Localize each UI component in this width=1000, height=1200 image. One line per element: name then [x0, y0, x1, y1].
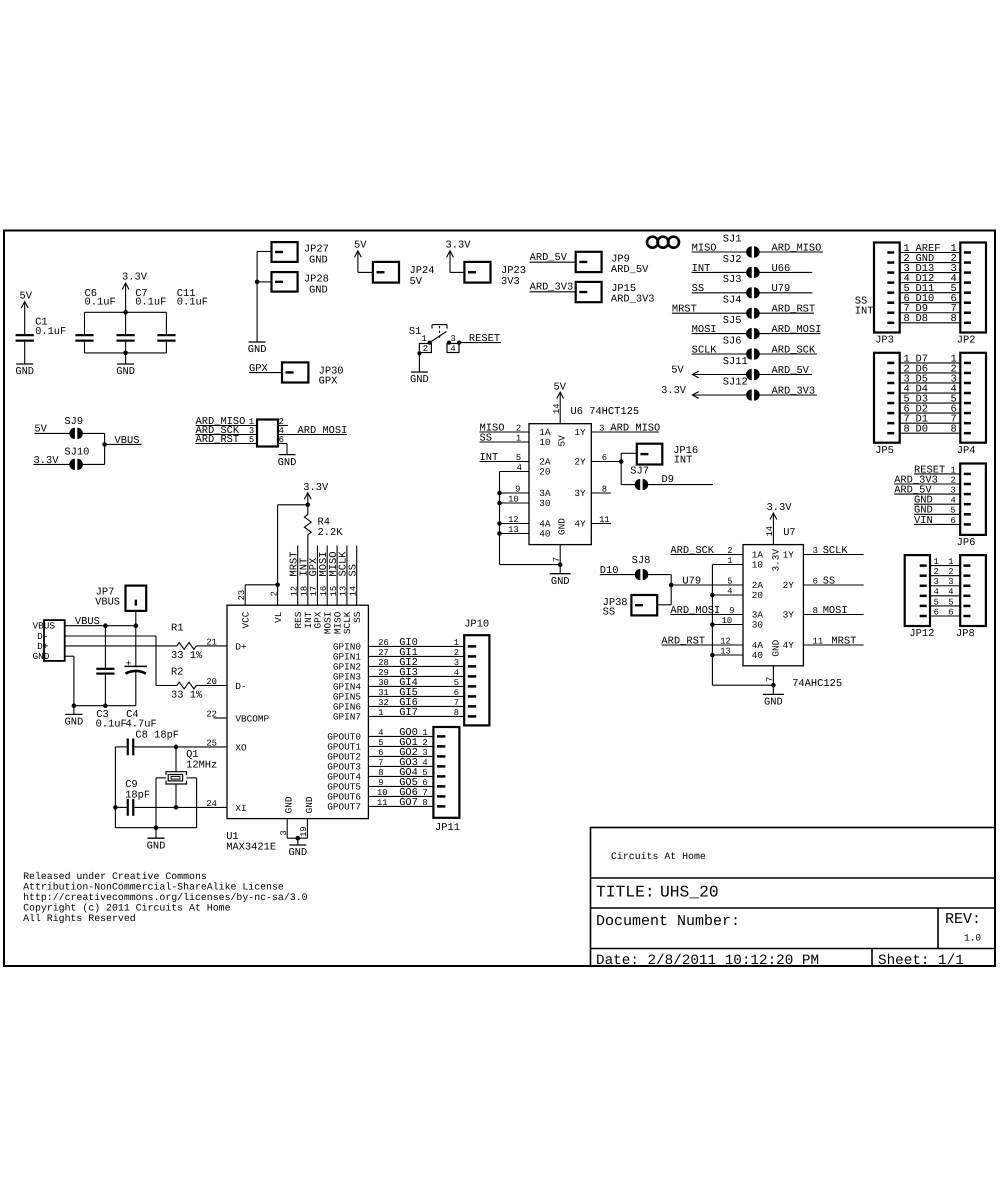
svg-text:20: 20 [752, 590, 764, 601]
svg-text:3: 3 [813, 546, 818, 556]
svg-text:INT: INT [674, 454, 693, 466]
svg-text:SJ4: SJ4 [723, 295, 742, 307]
svg-text:RESET: RESET [469, 333, 500, 345]
svg-text:13: 13 [339, 586, 349, 597]
svg-text:10: 10 [508, 494, 519, 504]
svg-text:10: 10 [377, 788, 388, 798]
svg-text:D8: D8 [916, 313, 928, 325]
svg-text:D+: D+ [235, 642, 247, 653]
svg-text:6: 6 [279, 435, 284, 445]
svg-text:4Y: 4Y [783, 640, 795, 651]
svg-text:3V3: 3V3 [501, 276, 520, 288]
svg-text:7: 7 [422, 788, 427, 798]
svg-text:SJ11: SJ11 [723, 356, 748, 368]
svg-text:GND: GND [147, 840, 166, 852]
svg-text:JP10: JP10 [464, 618, 489, 630]
svg-text:XO: XO [235, 743, 247, 754]
svg-text:Date: 2/8/2011 10:12:20 PM: Date: 2/8/2011 10:12:20 PM [596, 953, 819, 969]
svg-text:8: 8 [602, 484, 607, 494]
svg-text:INT: INT [299, 558, 311, 577]
svg-text:1: 1 [727, 556, 732, 566]
svg-text:1: 1 [516, 433, 521, 443]
svg-text:7: 7 [378, 758, 383, 768]
svg-text:12: 12 [508, 515, 519, 525]
svg-text:29: 29 [378, 668, 389, 678]
svg-text:SJ12: SJ12 [723, 376, 748, 388]
svg-text:5V: 5V [671, 365, 684, 377]
svg-text:0.1uF: 0.1uF [85, 296, 116, 308]
svg-text:5V: 5V [354, 240, 367, 252]
svg-text:UHS_20: UHS_20 [660, 882, 719, 901]
svg-text:6: 6 [602, 453, 607, 463]
svg-text:3.3V: 3.3V [770, 549, 781, 572]
svg-text:30: 30 [752, 620, 764, 631]
svg-text:14: 14 [349, 586, 359, 597]
svg-text:ARD_MOSI: ARD_MOSI [772, 324, 822, 336]
svg-text:9: 9 [729, 606, 734, 616]
svg-text:1.0: 1.0 [964, 932, 981, 943]
svg-text:SJ10: SJ10 [64, 447, 89, 459]
svg-text:17: 17 [309, 586, 319, 597]
svg-text:3: 3 [951, 486, 956, 496]
svg-text:D-: D- [235, 681, 246, 692]
svg-text:GND: GND [65, 717, 84, 729]
svg-text:SCLK: SCLK [692, 344, 718, 356]
svg-text:15: 15 [329, 586, 339, 597]
svg-text:GO7: GO7 [399, 797, 418, 809]
svg-text:18: 18 [300, 586, 310, 597]
svg-text:SS: SS [692, 283, 704, 295]
svg-text:JP4: JP4 [957, 445, 976, 457]
svg-text:10: 10 [752, 560, 764, 571]
svg-text:ARD_3V3: ARD_3V3 [772, 385, 816, 397]
svg-text:6: 6 [813, 576, 818, 586]
svg-text:40: 40 [752, 650, 764, 661]
svg-text:6: 6 [934, 607, 939, 617]
svg-text:VBCOMP: VBCOMP [235, 714, 269, 725]
svg-text:4: 4 [517, 463, 522, 473]
svg-text:GND: GND [304, 796, 315, 813]
svg-text:2: 2 [951, 475, 956, 485]
svg-text:INT: INT [692, 263, 711, 275]
svg-text:30: 30 [378, 678, 389, 688]
svg-text:1Y: 1Y [783, 550, 795, 561]
svg-text:14: 14 [552, 403, 562, 414]
svg-text:VBUS: VBUS [75, 616, 100, 628]
svg-text:5: 5 [378, 738, 383, 748]
svg-text:2Y: 2Y [574, 457, 586, 468]
svg-text:4: 4 [454, 668, 459, 678]
svg-text:5V: 5V [20, 291, 33, 303]
svg-text:Sheet: 1/1: Sheet: 1/1 [878, 953, 964, 969]
svg-text:GND: GND [116, 366, 135, 378]
svg-text:2: 2 [454, 648, 459, 658]
svg-text:19: 19 [299, 826, 309, 837]
svg-text:http://creativecommons.org/lic: http://creativecommons.org/licenses/by-n… [23, 892, 308, 903]
svg-text:3: 3 [599, 423, 604, 433]
svg-text:8: 8 [951, 424, 957, 436]
svg-text:GND: GND [284, 796, 295, 813]
svg-text:U79: U79 [682, 575, 701, 587]
svg-text:R1: R1 [171, 622, 183, 634]
svg-text:TITLE:: TITLE: [596, 882, 655, 901]
svg-text:28: 28 [378, 658, 389, 668]
svg-text:5V: 5V [410, 276, 423, 288]
svg-text:Circuits At Home: Circuits At Home [611, 851, 706, 862]
svg-text:4: 4 [934, 587, 939, 597]
svg-text:1: 1 [951, 465, 956, 475]
svg-text:2: 2 [934, 567, 939, 577]
svg-text:3: 3 [454, 658, 459, 668]
svg-text:MOSI: MOSI [692, 324, 717, 336]
svg-text:JP2: JP2 [957, 334, 976, 346]
svg-text:D0: D0 [916, 424, 928, 436]
svg-text:GND: GND [764, 697, 783, 709]
svg-text:10: 10 [722, 616, 733, 626]
svg-text:6: 6 [378, 748, 383, 758]
svg-text:ARD MOSI: ARD MOSI [298, 425, 348, 437]
svg-text:20: 20 [539, 467, 551, 478]
svg-text:INT: INT [303, 611, 314, 628]
svg-text:GND: GND [770, 639, 781, 656]
svg-text:5: 5 [934, 597, 939, 607]
svg-text:7: 7 [765, 677, 775, 682]
svg-text:U6 74HCT125: U6 74HCT125 [571, 406, 640, 418]
svg-text:5: 5 [727, 576, 732, 586]
svg-text:8: 8 [813, 606, 818, 616]
svg-text:6: 6 [951, 516, 956, 526]
svg-text:6: 6 [422, 778, 427, 788]
svg-text:VL: VL [273, 611, 284, 623]
svg-text:SJ3: SJ3 [723, 274, 742, 286]
svg-text:1: 1 [454, 638, 459, 648]
svg-text:S1: S1 [409, 326, 421, 338]
svg-text:4: 4 [951, 496, 956, 506]
svg-text:JP3: JP3 [875, 334, 894, 346]
svg-text:GPIN7: GPIN7 [333, 712, 361, 723]
svg-text:GND: GND [551, 576, 570, 588]
svg-text:7: 7 [454, 698, 459, 708]
svg-text:4Y: 4Y [574, 519, 586, 530]
svg-text:40: 40 [539, 529, 551, 540]
svg-text:12: 12 [290, 586, 300, 597]
svg-text:Document Number:: Document Number: [596, 913, 740, 930]
svg-text:VCC: VCC [240, 611, 251, 628]
svg-text:4: 4 [378, 728, 383, 738]
svg-text:1: 1 [422, 728, 427, 738]
svg-text:16: 16 [319, 586, 329, 597]
svg-text:ARD_5V: ARD_5V [772, 365, 810, 377]
svg-text:SJ7: SJ7 [630, 466, 649, 478]
svg-text:26: 26 [378, 638, 389, 648]
svg-text:ARD_RST: ARD_RST [772, 304, 816, 316]
svg-text:VIN: VIN [914, 515, 933, 527]
svg-text:5V: 5V [556, 435, 567, 447]
svg-text:1: 1 [378, 708, 383, 718]
svg-text:Copyright (c) 2011 Circuits At: Copyright (c) 2011 Circuits At Home [23, 902, 230, 913]
svg-text:8: 8 [422, 798, 427, 808]
svg-text:3: 3 [934, 577, 939, 587]
svg-text:VBUS: VBUS [115, 435, 140, 447]
svg-text:ARD_RST: ARD_RST [661, 635, 705, 647]
svg-text:9: 9 [378, 778, 383, 788]
svg-text:INT: INT [855, 306, 874, 318]
svg-text:INT: INT [480, 452, 499, 464]
svg-text:MOSI: MOSI [823, 605, 848, 617]
svg-text:3.3V: 3.3V [303, 482, 329, 494]
svg-text:U66: U66 [772, 263, 791, 275]
svg-text:13: 13 [720, 646, 731, 656]
svg-text:MRST: MRST [831, 635, 856, 647]
svg-text:31: 31 [378, 688, 389, 698]
svg-text:1: 1 [934, 557, 939, 567]
svg-text:D9: D9 [662, 474, 674, 486]
svg-text:33 1%: 33 1% [171, 650, 203, 662]
svg-text:JP12: JP12 [909, 628, 934, 640]
svg-text:11: 11 [813, 636, 824, 646]
svg-text:SJ9: SJ9 [64, 416, 83, 428]
svg-text:10: 10 [539, 437, 551, 448]
svg-text:GND: GND [556, 518, 567, 535]
svg-text:MISO: MISO [692, 242, 717, 254]
svg-text:SJ8: SJ8 [632, 555, 651, 567]
svg-text:GI7: GI7 [399, 707, 418, 719]
svg-text:1: 1 [948, 557, 953, 567]
svg-text:GPX: GPX [319, 375, 338, 387]
svg-text:SS: SS [348, 564, 360, 576]
svg-text:4: 4 [948, 587, 953, 597]
svg-text:MAX3421E: MAX3421E [226, 842, 276, 854]
svg-text:SS: SS [603, 606, 615, 618]
svg-text:GND: GND [15, 366, 34, 378]
svg-text:1Y: 1Y [574, 427, 586, 438]
svg-text:SS: SS [823, 575, 835, 587]
svg-text:0.1uF: 0.1uF [135, 296, 166, 308]
svg-text:U7: U7 [783, 527, 795, 539]
svg-text:GND: GND [309, 254, 328, 266]
svg-text:2: 2 [423, 344, 428, 354]
svg-text:SCLK: SCLK [823, 545, 849, 557]
svg-text:12MHz: 12MHz [186, 759, 217, 771]
svg-text:GND: GND [33, 651, 50, 662]
svg-text:3.3V: 3.3V [122, 272, 148, 284]
svg-text:SJ1: SJ1 [723, 233, 742, 245]
svg-text:4: 4 [727, 586, 732, 596]
svg-text:3Y: 3Y [574, 488, 586, 499]
svg-text:GND: GND [410, 374, 429, 386]
svg-text:GPOUT7: GPOUT7 [327, 802, 361, 813]
svg-text:5: 5 [951, 506, 956, 516]
svg-text:27: 27 [378, 648, 389, 658]
svg-text:2.2K: 2.2K [318, 527, 344, 539]
svg-text:U79: U79 [772, 283, 791, 295]
svg-text:2Y: 2Y [783, 580, 795, 591]
svg-text:D10: D10 [600, 565, 619, 577]
svg-text:ARD_5V: ARD_5V [611, 264, 649, 276]
svg-text:3.3V: 3.3V [661, 385, 687, 397]
svg-text:8: 8 [378, 768, 383, 778]
svg-text:GND: GND [278, 457, 297, 469]
svg-text:ARD_RST: ARD_RST [196, 434, 240, 446]
svg-text:All Rights Reserved: All Rights Reserved [23, 913, 136, 924]
svg-text:11: 11 [377, 798, 388, 808]
svg-text:0.1uF: 0.1uF [35, 326, 66, 338]
svg-text:32: 32 [378, 698, 389, 708]
svg-text:5: 5 [249, 435, 254, 445]
svg-text:3.3V: 3.3V [34, 455, 60, 467]
svg-text:7: 7 [552, 557, 562, 562]
svg-text:2: 2 [422, 738, 427, 748]
svg-text:8: 8 [454, 708, 459, 718]
svg-text:SJ2: SJ2 [723, 254, 742, 266]
svg-text:JP8: JP8 [956, 628, 975, 640]
svg-text:+: + [126, 658, 132, 669]
svg-text:0.1uF: 0.1uF [177, 296, 208, 308]
svg-text:R2: R2 [171, 667, 183, 679]
svg-text:VBUS: VBUS [95, 596, 120, 608]
svg-text:6: 6 [948, 607, 953, 617]
svg-text:GND: GND [288, 847, 307, 859]
svg-text:12: 12 [720, 636, 731, 646]
svg-text:5: 5 [454, 678, 459, 688]
svg-text:SS: SS [352, 611, 363, 623]
svg-text:REV:: REV: [945, 911, 981, 928]
svg-text:GND: GND [248, 344, 267, 356]
svg-text:30: 30 [539, 498, 551, 509]
svg-text:8: 8 [904, 424, 910, 436]
svg-text:3: 3 [279, 830, 289, 835]
svg-text:ARD_SCK: ARD_SCK [670, 545, 714, 557]
svg-text:JP11: JP11 [435, 822, 460, 834]
svg-text:ARD MISO: ARD MISO [610, 422, 660, 434]
svg-text:Attribution-NonCommercial-Shar: Attribution-NonCommercial-ShareAlike Lic… [23, 881, 284, 892]
svg-text:5: 5 [516, 453, 521, 463]
svg-text:Released under Creative Common: Released under Creative Commons [23, 871, 207, 882]
svg-text:GND: GND [309, 284, 328, 296]
svg-text:74AHC125: 74AHC125 [792, 678, 842, 690]
svg-text:18pF: 18pF [125, 789, 150, 801]
svg-text:4: 4 [422, 758, 427, 768]
svg-text:2: 2 [948, 567, 953, 577]
svg-text:4: 4 [450, 344, 455, 354]
svg-text:XI: XI [235, 803, 246, 814]
svg-text:11: 11 [599, 515, 610, 525]
svg-text:13: 13 [508, 525, 519, 535]
svg-text:3: 3 [948, 577, 953, 587]
svg-text:3Y: 3Y [783, 610, 795, 621]
svg-text:SJ5: SJ5 [723, 315, 742, 327]
svg-text:8: 8 [904, 313, 910, 325]
svg-text:5: 5 [948, 597, 953, 607]
svg-text:5: 5 [422, 768, 427, 778]
svg-text:3: 3 [422, 748, 427, 758]
svg-text:1: 1 [422, 334, 427, 344]
svg-text:2: 2 [269, 591, 279, 596]
svg-text:JP6: JP6 [957, 537, 976, 549]
svg-text:0.1uF: 0.1uF [96, 719, 127, 731]
svg-text:3.3V: 3.3V [767, 502, 793, 514]
svg-text:2: 2 [727, 546, 732, 556]
svg-text:2: 2 [516, 423, 521, 433]
svg-text:33 1%: 33 1% [171, 689, 203, 701]
svg-text:6: 6 [454, 688, 459, 698]
svg-text:9: 9 [515, 484, 520, 494]
svg-text:ARD_SCK: ARD_SCK [772, 344, 816, 356]
svg-text:JP5: JP5 [875, 445, 894, 457]
svg-text:14: 14 [765, 526, 775, 537]
svg-text:3.3V: 3.3V [446, 240, 472, 252]
svg-text:3: 3 [451, 334, 456, 344]
svg-text:SS: SS [480, 432, 492, 444]
svg-text:8: 8 [951, 313, 957, 325]
svg-text:ARD_MISO: ARD_MISO [772, 242, 822, 254]
svg-text:23: 23 [237, 590, 247, 601]
svg-text:ARD_3V3: ARD_3V3 [611, 294, 655, 306]
svg-text:MRST: MRST [672, 304, 697, 316]
svg-text:C8 18pF: C8 18pF [135, 730, 179, 742]
svg-text:SJ6: SJ6 [723, 335, 742, 347]
